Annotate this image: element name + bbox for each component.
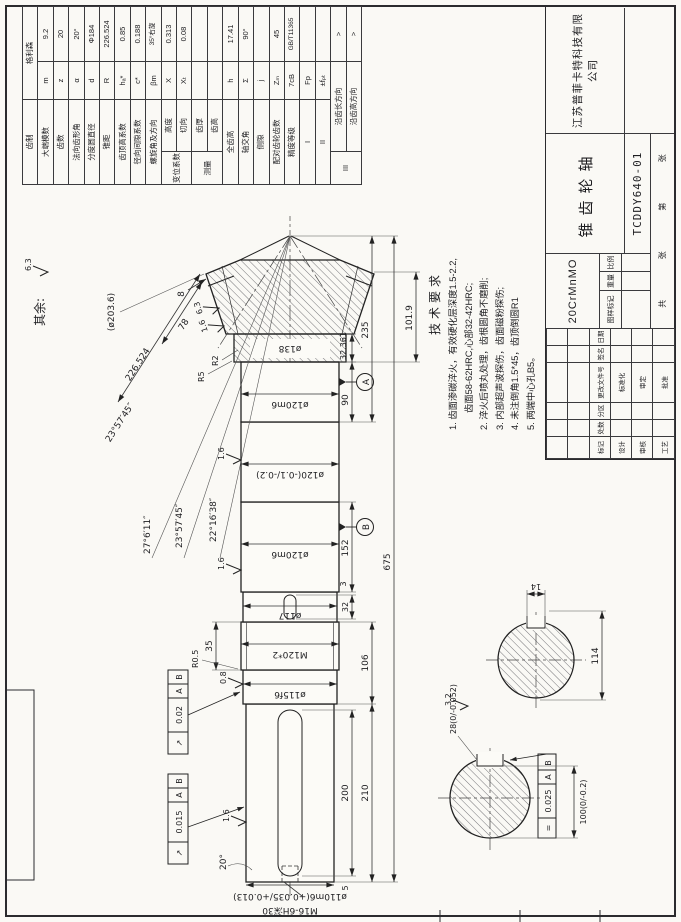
thread-m120: M120*2	[272, 649, 307, 659]
param-symbol: R	[100, 62, 115, 100]
title-block: 标记处数分区更改文件号签名日期 设计标准化 审核审定 工艺批准 20CrMnMO…	[545, 6, 676, 460]
center-hole-label: M16-6H深30	[262, 905, 318, 916]
technical-requirements: 技术要求 1. 齿面渗碳淬火，有效硬化层深度1.5-2.2, 齿面58-62HR…	[426, 176, 540, 430]
param-name: 切向	[177, 100, 192, 152]
param-value: >	[331, 7, 346, 62]
param-symbol: Zₘ	[269, 62, 284, 100]
param-symbol: m	[38, 62, 53, 100]
table-row: 精度等级7cBGB/T11365	[284, 7, 299, 185]
param-symbol: α	[69, 62, 84, 100]
note-value: 6.3	[24, 258, 33, 271]
param-value	[192, 7, 207, 62]
param-value: 45	[269, 7, 284, 62]
dim-200: 200	[341, 784, 351, 801]
runout-icon: ↗	[175, 850, 184, 857]
gear-parameter-table: 齿制格利森 大端模数m9.2 齿数z20 法向齿形角α20° 分度圆直径dΦ18…	[22, 6, 362, 185]
dim-675: 675	[383, 553, 393, 570]
weight-header: 重量	[599, 272, 621, 291]
param-symbol: d	[84, 62, 99, 100]
gdt-ref-b: B	[175, 778, 184, 784]
dim-8: 8	[177, 291, 187, 297]
param-symbol: Fp	[300, 62, 315, 100]
sig-header: 处数	[589, 420, 610, 437]
param-value: 0.85	[115, 7, 130, 62]
tech-req-line: 4. 未注倒角1.5*45，齿顶倒圆R1	[508, 176, 524, 430]
dim-32-361: 32.361	[339, 332, 348, 360]
param-group: III	[331, 152, 362, 185]
gdt-ref-a: A	[175, 688, 184, 694]
runout2-value: 0.015	[175, 811, 184, 834]
param-symbol: hₐ*	[115, 62, 130, 100]
sig-header: 标记	[589, 437, 610, 459]
dim-114: 114	[591, 647, 601, 664]
dim-32: 32	[341, 602, 350, 612]
param-name: 沿齿高方向	[346, 62, 361, 152]
table-row: 设计标准化	[610, 329, 631, 459]
note-label: 其余:	[32, 298, 47, 326]
tech-req-title: 技术要求	[426, 176, 443, 430]
table-row: 轴交角Σ90°	[238, 7, 253, 185]
table-row: II±fₚₜ	[315, 7, 330, 185]
param-symbol: Xₜ	[177, 62, 192, 100]
sheet-total-label: 共	[657, 300, 668, 308]
roughness-value: 1.6	[217, 557, 226, 570]
dia-120m6-b: ø120m6	[271, 549, 308, 559]
tech-req-line: 3. 内部超声波探伤，齿面磁粉探伤;	[493, 176, 509, 430]
param-name: 锥距	[100, 100, 115, 185]
param-value: Φ184	[84, 7, 99, 62]
signature-table: 标记处数分区更改文件号签名日期 设计标准化 审核审定 工艺批准	[546, 328, 675, 459]
datum-a-label: A	[362, 378, 372, 385]
sig-cell: 工艺	[653, 437, 674, 459]
sig-header: 分区	[589, 403, 610, 420]
runout-icon: ↗	[175, 740, 184, 747]
dim-3: 3	[339, 581, 348, 586]
param-value: 0.08	[177, 7, 192, 62]
table-row: 法向齿形角α20°	[69, 7, 84, 185]
table-row: 径向间隙系数c*0.188	[130, 7, 145, 185]
param-symbol	[192, 62, 207, 100]
param-value: 17.41	[223, 7, 238, 62]
param-name: 径向间隙系数	[130, 100, 145, 185]
roughness-value: 1.6	[197, 319, 209, 334]
angle-22: 22°16′38″	[209, 497, 219, 542]
param-name: 大端模数	[38, 100, 53, 185]
param-name: 齿数	[53, 100, 68, 185]
dim-14: 14	[531, 582, 541, 591]
dim-cone-distance: 226.524	[124, 346, 153, 383]
mark-header: 图样标记	[599, 291, 621, 329]
param-value: 9.2	[38, 7, 53, 62]
table-row: IFp	[300, 7, 315, 185]
tech-req-line: 1. 齿面渗碳淬火，有效硬化层深度1.5-2.2,	[446, 176, 462, 430]
dim-35: 35	[205, 640, 215, 651]
tech-req-line: 齿面58-62HRC,心部32-42HRC;	[462, 176, 478, 430]
param-symbol: Σ	[238, 62, 253, 100]
radius-r2: R2	[211, 355, 220, 366]
scale-header: 比例	[599, 254, 621, 272]
table-row	[547, 329, 568, 459]
company-lower-cell	[624, 8, 674, 134]
param-value: >	[346, 7, 361, 62]
roughness-value: 1.6	[222, 809, 231, 822]
radius-r5: R5	[197, 371, 206, 382]
landscape-drawing-sheet: 200 5 3 32 152 90 32.361 210 106 235 675…	[0, 0, 681, 922]
param-symbol: c*	[130, 62, 145, 100]
param-value: 226.524	[100, 7, 115, 62]
scale-value-cell	[621, 254, 650, 272]
angle-27: 27°6′11″	[143, 515, 153, 554]
param-symbol: h	[223, 62, 238, 100]
datum-b-label: B	[362, 524, 372, 530]
param-symbol: z	[53, 62, 68, 100]
table-row: III沿齿长方向>	[331, 7, 346, 185]
sig-cell: 审核	[632, 437, 653, 459]
param-name: 侧隙	[254, 100, 269, 185]
param-name: 法向齿形角	[69, 100, 84, 185]
param-name: 高度	[161, 100, 176, 152]
mark-value-cell	[621, 291, 650, 329]
table-row: 全齿高h17.41	[223, 7, 238, 185]
table-row: 齿顶高系数hₐ*0.85	[115, 7, 130, 185]
sig-cell: 标准化	[610, 363, 631, 403]
table-row: 侧隙j	[254, 7, 269, 185]
param-name: 轴交角	[238, 100, 253, 185]
general-roughness-note: 其余: 6.3	[24, 258, 48, 326]
param-symbol: βm	[146, 62, 161, 100]
table-row: 锥距R226.524	[100, 7, 115, 185]
sig-cell: 批准	[653, 363, 674, 403]
section-view-1: 14 114	[486, 582, 606, 708]
param-name: 全齿高	[223, 100, 238, 185]
dim-28-keyway: 28(0/-0.052)	[449, 684, 458, 734]
param-value: 35°右旋	[146, 7, 161, 62]
section-view-2: 28(0/-0.052) 100(0/-0.2)	[438, 684, 588, 850]
angle-cone: 23°57′45″	[104, 401, 137, 444]
part-name-cell: 锥齿轮轴	[546, 134, 624, 254]
param-value: 格利森	[23, 7, 38, 100]
mark-label: 图样标记	[606, 296, 616, 324]
table-row: 测量齿厚	[192, 7, 207, 185]
dim-203-6: (ø203.6)	[107, 293, 117, 331]
radius-r05: R0.5	[191, 650, 200, 668]
symmetry-value: 0.025	[544, 790, 553, 813]
param-name: 螺旋角及方向	[146, 100, 161, 185]
param-symbol	[207, 62, 222, 100]
param-value: 20°	[69, 7, 84, 62]
dia-138: ø138	[278, 343, 301, 353]
material-value: 20CrMnMO	[567, 259, 579, 324]
param-value: 0.188	[130, 7, 145, 62]
angle-20: 20°	[219, 854, 229, 870]
param-name: 配对齿轮齿数	[269, 100, 284, 185]
param-name: 齿高	[207, 100, 222, 152]
company-name: 江苏普菲卡特科技有限公司	[570, 8, 600, 133]
sig-cell: 设计	[610, 437, 631, 459]
company-cell: 江苏普菲卡特科技有限公司	[546, 8, 624, 134]
param-name: 齿厚	[192, 100, 207, 152]
param-symbol: j	[254, 62, 269, 100]
scale-label: 比例	[606, 256, 616, 270]
dia-120m6-a: ø120m6	[271, 399, 308, 409]
param-value	[254, 7, 269, 62]
table-row	[568, 329, 589, 459]
datum-a: A	[339, 374, 374, 391]
dia-115f6: ø115f6	[274, 689, 306, 699]
param-name: 齿顶高系数	[115, 100, 130, 185]
param-name: 齿制	[23, 100, 38, 185]
param-value: 20	[53, 7, 68, 62]
tech-req-line: 5. 两端中心孔B5。	[524, 176, 540, 430]
symmetry-icon: =	[544, 825, 553, 832]
table-row: 审核审定	[632, 329, 653, 459]
dim-101-9: 101.9	[405, 305, 415, 331]
sheet-strip: 共 张 第 张	[650, 134, 674, 329]
param-symbol: ±fₚₜ	[315, 62, 330, 100]
dim-235: 235	[361, 321, 371, 338]
roughness-value: 0.8	[219, 671, 228, 684]
dim-5: 5	[341, 885, 350, 890]
param-value	[207, 7, 222, 62]
param-name: 沿齿长方向	[331, 62, 346, 152]
param-group: 变位系数	[161, 152, 192, 185]
table-row: 工艺批准	[653, 329, 674, 459]
param-value: GB/T11365	[284, 7, 299, 62]
runout1-value: 0.02	[175, 706, 184, 724]
param-group: 测量	[192, 152, 223, 185]
angle-23: 23°57′45″	[175, 503, 185, 548]
table-row: 标记处数分区更改文件号签名日期	[589, 329, 610, 459]
part-name: 锥齿轮轴	[575, 150, 596, 238]
gdt-ref-a: A	[544, 774, 553, 780]
sig-header: 签名	[589, 346, 610, 363]
param-name: 分度圆直径	[84, 100, 99, 185]
dia-120-tol: ø120(-0.1/-0.2)	[256, 469, 324, 479]
sheet-unit-label: 张	[657, 251, 668, 259]
param-name: II	[315, 100, 330, 185]
dim-152: 152	[341, 539, 351, 556]
table-row: 分度圆直径dΦ184	[84, 7, 99, 185]
scanned-drawing-page: 200 5 3 32 152 90 32.361 210 106 235 675…	[0, 0, 681, 922]
drawing-number: TCDDY640-01	[631, 152, 644, 236]
weight-label: 重量	[606, 274, 616, 288]
tech-req-line: 2. 淬火后喷丸处理，齿根圆角不磨削;	[477, 176, 493, 430]
param-value	[315, 7, 330, 62]
sheet-no-label: 第	[657, 203, 668, 211]
table-row: 大端模数m9.2	[38, 7, 53, 185]
drawing-number-cell: TCDDY640-01	[624, 134, 650, 254]
param-value: 90°	[238, 7, 253, 62]
gdt-ref-a: A	[175, 792, 184, 798]
weight-value-cell	[621, 272, 650, 291]
table-row: 螺旋角及方向βm35°右旋	[146, 7, 161, 185]
table-row: 配对齿轮齿数Zₘ45	[269, 7, 284, 185]
dia-110m6: ø110m6(+0.035/+0.013)	[233, 891, 347, 901]
roughness-value: 1.6	[217, 447, 226, 460]
dim-210: 210	[361, 784, 371, 801]
param-value	[300, 7, 315, 62]
datum-b: B	[339, 519, 374, 536]
roughness-value: 6.3	[192, 301, 204, 316]
param-value: 0.313	[161, 7, 176, 62]
material-cell: 20CrMnMO	[546, 254, 599, 329]
param-symbol: X	[161, 62, 176, 100]
sig-header: 更改文件号	[589, 363, 610, 403]
param-name: I	[300, 100, 315, 185]
sheet-unit-label: 张	[657, 154, 668, 162]
gdt-ref-b: B	[544, 760, 553, 766]
sig-cell: 审定	[632, 363, 653, 403]
dim-78: 78	[177, 317, 192, 332]
dia-117: ø117	[279, 610, 302, 620]
table-row: 齿制格利森	[23, 7, 38, 185]
param-symbol: 7cB	[284, 62, 299, 100]
dim-90: 90	[341, 394, 351, 406]
sig-header: 日期	[589, 329, 610, 346]
table-row: 变位系数高度X0.313	[161, 7, 176, 185]
dim-106: 106	[361, 654, 371, 671]
table-row: 齿数z20	[53, 7, 68, 185]
gdt-ref-b: B	[175, 674, 184, 680]
param-name: 精度等级	[284, 100, 299, 185]
dim-100: 100(0/-0.2)	[579, 780, 588, 825]
